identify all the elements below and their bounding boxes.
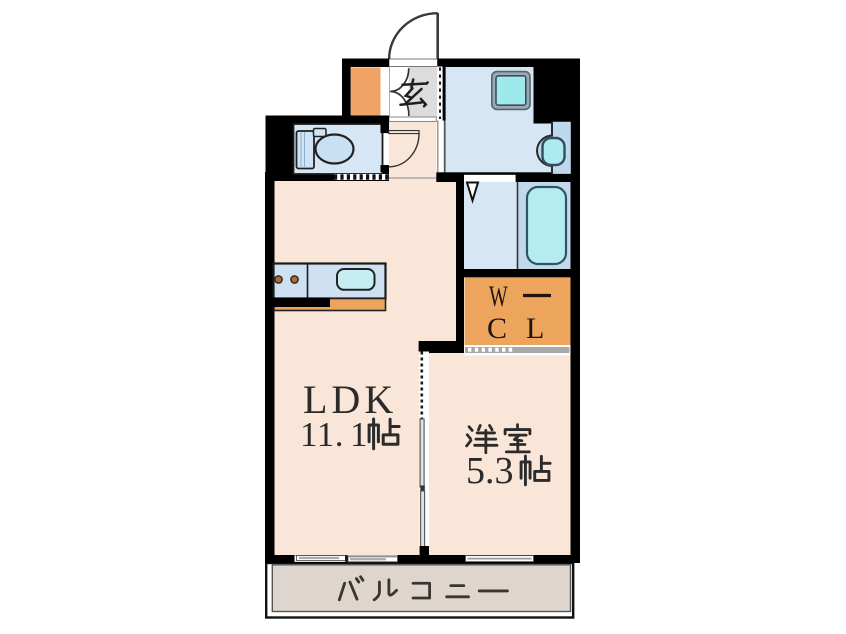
- svg-text:L: L: [526, 312, 544, 345]
- svg-text:11.: 11.: [300, 415, 344, 454]
- svg-text:W: W: [489, 280, 508, 313]
- svg-text:1: 1: [350, 415, 368, 454]
- svg-text:C: C: [487, 312, 507, 345]
- svg-text:5.3: 5.3: [466, 450, 514, 492]
